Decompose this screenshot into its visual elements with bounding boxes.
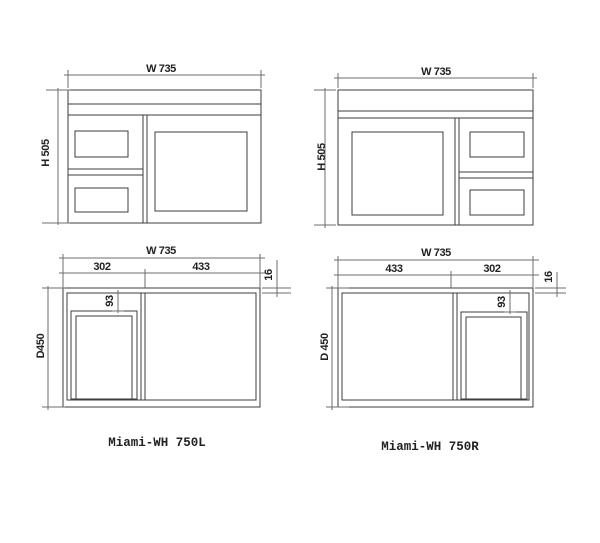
plan-left-dimension-lines (42, 254, 291, 410)
front-right-width-dimension: W 735 (421, 66, 451, 78)
plan-left-drawer-inset-dimension: 93 (104, 295, 116, 307)
front-right-cabinet-outline (338, 90, 533, 225)
plan-left-width-dimension: W 735 (146, 245, 176, 257)
plan-left-carcass-outline (63, 288, 260, 407)
plan-right-depth-dimension: D 450 (319, 333, 331, 361)
model-caption-left: Miami-WH 750L (108, 436, 206, 450)
plan-right-panel-thickness-dimension: 16 (543, 271, 555, 283)
plan-view-right: W 735 433 302 93 16 D 450 (319, 247, 566, 410)
drawer-box-outer (461, 312, 527, 399)
model-caption-right: Miami-WH 750R (381, 440, 479, 454)
drawer-box-inner (466, 317, 521, 399)
front-right-dimension-lines (314, 73, 537, 228)
front-left-height-dimension: H 505 (40, 139, 52, 167)
drawer-front-bottom (75, 188, 128, 212)
technical-drawing-canvas: W 735 H 505 W 735 H 505 (0, 0, 600, 543)
plan-view-left: W 735 302 433 93 16 D450 (35, 245, 291, 410)
plan-right-dimension-lines (326, 256, 566, 410)
door-panel (155, 132, 247, 211)
door-panel (352, 132, 443, 215)
plan-left-segment-left-dimension: 302 (93, 261, 110, 273)
drawer-front-top (470, 132, 524, 157)
plan-left-panel-thickness-dimension: 16 (263, 269, 275, 281)
front-right-height-dimension: H 505 (316, 143, 328, 171)
plan-left-depth-dimension: D450 (35, 333, 47, 358)
plan-right-drawer-inset-dimension: 93 (496, 296, 508, 308)
drawer-front-bottom (470, 190, 524, 215)
carcass-outer (63, 288, 260, 407)
front-left-width-dimension: W 735 (146, 63, 176, 75)
plan-right-segment-left-dimension: 433 (385, 263, 402, 275)
drawing-sheet: W 735 H 505 W 735 H 505 (0, 0, 600, 543)
drawer-box-inner (76, 316, 132, 399)
plan-left-segment-right-dimension: 433 (192, 261, 209, 273)
plan-right-width-dimension: W 735 (421, 247, 451, 259)
front-view-left: W 735 H 505 (40, 63, 265, 225)
carcass-inner (342, 293, 529, 400)
plan-right-segment-right-dimension: 302 (483, 263, 500, 275)
front-left-cabinet-outline (68, 90, 261, 223)
drawer-front-top (75, 131, 128, 157)
drawer-box-outer (71, 311, 137, 399)
front-view-right: W 735 H 505 (314, 66, 537, 228)
carcass-inner (67, 293, 256, 400)
